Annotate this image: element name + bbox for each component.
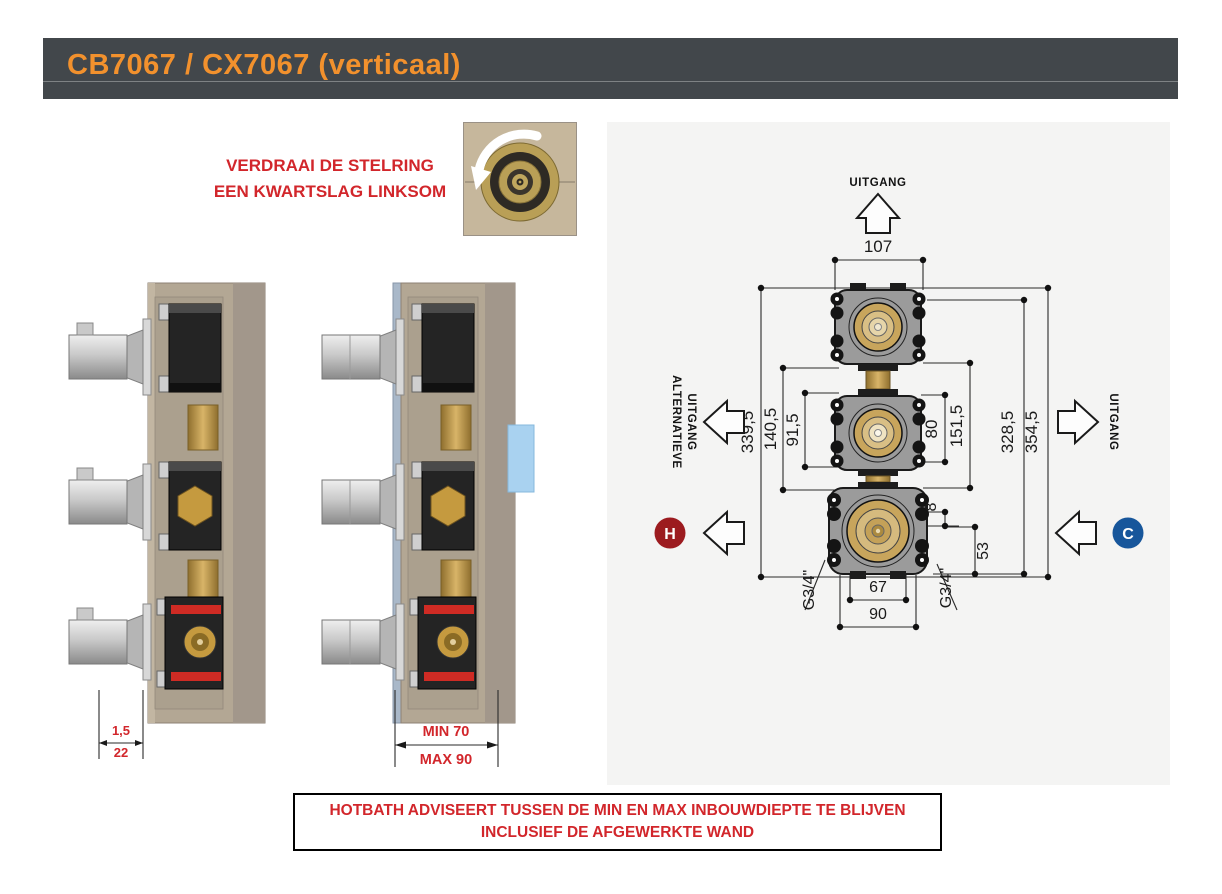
handle-bottom xyxy=(322,604,404,680)
dim-53: 53 xyxy=(975,542,992,560)
arrow-up-icon xyxy=(857,194,899,233)
handle-top xyxy=(322,319,404,395)
brass-pipe-top xyxy=(188,405,218,450)
handle-middle xyxy=(69,464,151,540)
dim-354-5: 354,5 xyxy=(1022,411,1041,454)
dim-140-5: 140,5 xyxy=(761,408,780,451)
technical-drawing: UITGANG xyxy=(607,122,1170,785)
dim-90: 90 xyxy=(869,606,887,623)
advice-box: HOTBATH ADVISEERT TUSSEN DE MIN EN MAX I… xyxy=(293,793,942,851)
header-divider-line xyxy=(43,81,1178,82)
valve-module-bottom xyxy=(410,597,476,689)
dim-1-5: 1,5 xyxy=(112,723,130,738)
dim-thread-left: G3/4" xyxy=(801,570,818,610)
dim-8: 8 xyxy=(923,502,940,511)
brass-pipe-top xyxy=(441,405,471,450)
handle-middle xyxy=(322,464,404,540)
connector-pipe-bottom xyxy=(858,470,898,488)
outlet-top-label: UITGANG xyxy=(849,177,906,189)
outlet-left-label-line2: UITGANG xyxy=(685,393,697,450)
dim-107: 107 xyxy=(864,237,892,256)
advice-line2: INCLUSIEF DE AFGEWERKTE WAND xyxy=(481,822,754,844)
valve-body-top xyxy=(831,283,926,364)
cold-water-label: C xyxy=(1122,526,1134,543)
dim-max-90: MAX 90 xyxy=(420,752,472,768)
valve-body-thermostat xyxy=(827,488,929,579)
brass-pipe-bottom xyxy=(441,560,471,598)
valve-module-bottom xyxy=(157,597,223,689)
red-stripe-bottom xyxy=(424,672,474,681)
product-photo-left: 1,5 22 xyxy=(55,275,305,775)
dim-91-5: 91,5 xyxy=(783,413,802,446)
connector-pipe-top xyxy=(858,364,898,396)
product-photo-right: MIN 70 MAX 90 xyxy=(320,275,570,775)
valve-body-middle xyxy=(831,396,926,470)
handle-bottom xyxy=(69,604,151,680)
tile-strip xyxy=(508,425,534,492)
handle-top xyxy=(69,319,151,395)
page-title: CB7067 / CX7067 (verticaal) xyxy=(67,49,461,82)
arrow-right-hot-icon xyxy=(704,512,744,554)
arrow-left-cold-icon xyxy=(1056,512,1096,554)
stelring-instruction: VERDRAAI DE STELRING EEN KWARTSLAG LINKS… xyxy=(185,153,475,204)
dim-328-5: 328,5 xyxy=(998,411,1017,454)
stelring-image xyxy=(463,122,577,236)
brass-pipe-bottom xyxy=(188,560,218,598)
stelring-rings xyxy=(481,143,559,221)
header-bar: CB7067 / CX7067 (verticaal) xyxy=(43,38,1178,99)
datasheet-page: CB7067 / CX7067 (verticaal) VERDRAAI DE … xyxy=(0,0,1222,894)
instruction-line2: EEN KWARTSLAG LINKSOM xyxy=(185,179,475,205)
red-stripe-bottom xyxy=(171,672,221,681)
dimension-wall-thickness: 1,5 22 xyxy=(99,690,143,760)
dim-151-5: 151,5 xyxy=(947,405,966,448)
dim-min-70: MIN 70 xyxy=(423,724,470,740)
dim-22: 22 xyxy=(114,745,128,760)
red-stripe-top xyxy=(424,605,474,614)
outlet-right-label: UITGANG xyxy=(1107,393,1119,450)
outlet-left-label-line1: ALTERNATIEVE xyxy=(670,375,682,469)
technical-drawing-panel: UITGANG xyxy=(607,122,1170,785)
hot-water-label: H xyxy=(664,526,676,543)
dim-80: 80 xyxy=(922,420,941,439)
dim-thread-right: G3/4" xyxy=(938,568,955,608)
advice-line1: HOTBATH ADVISEERT TUSSEN DE MIN EN MAX I… xyxy=(329,800,905,822)
red-stripe-top xyxy=(171,605,221,614)
arrow-right-icon xyxy=(1058,401,1098,443)
instruction-line1: VERDRAAI DE STELRING xyxy=(185,153,475,179)
dim-67: 67 xyxy=(869,579,887,596)
